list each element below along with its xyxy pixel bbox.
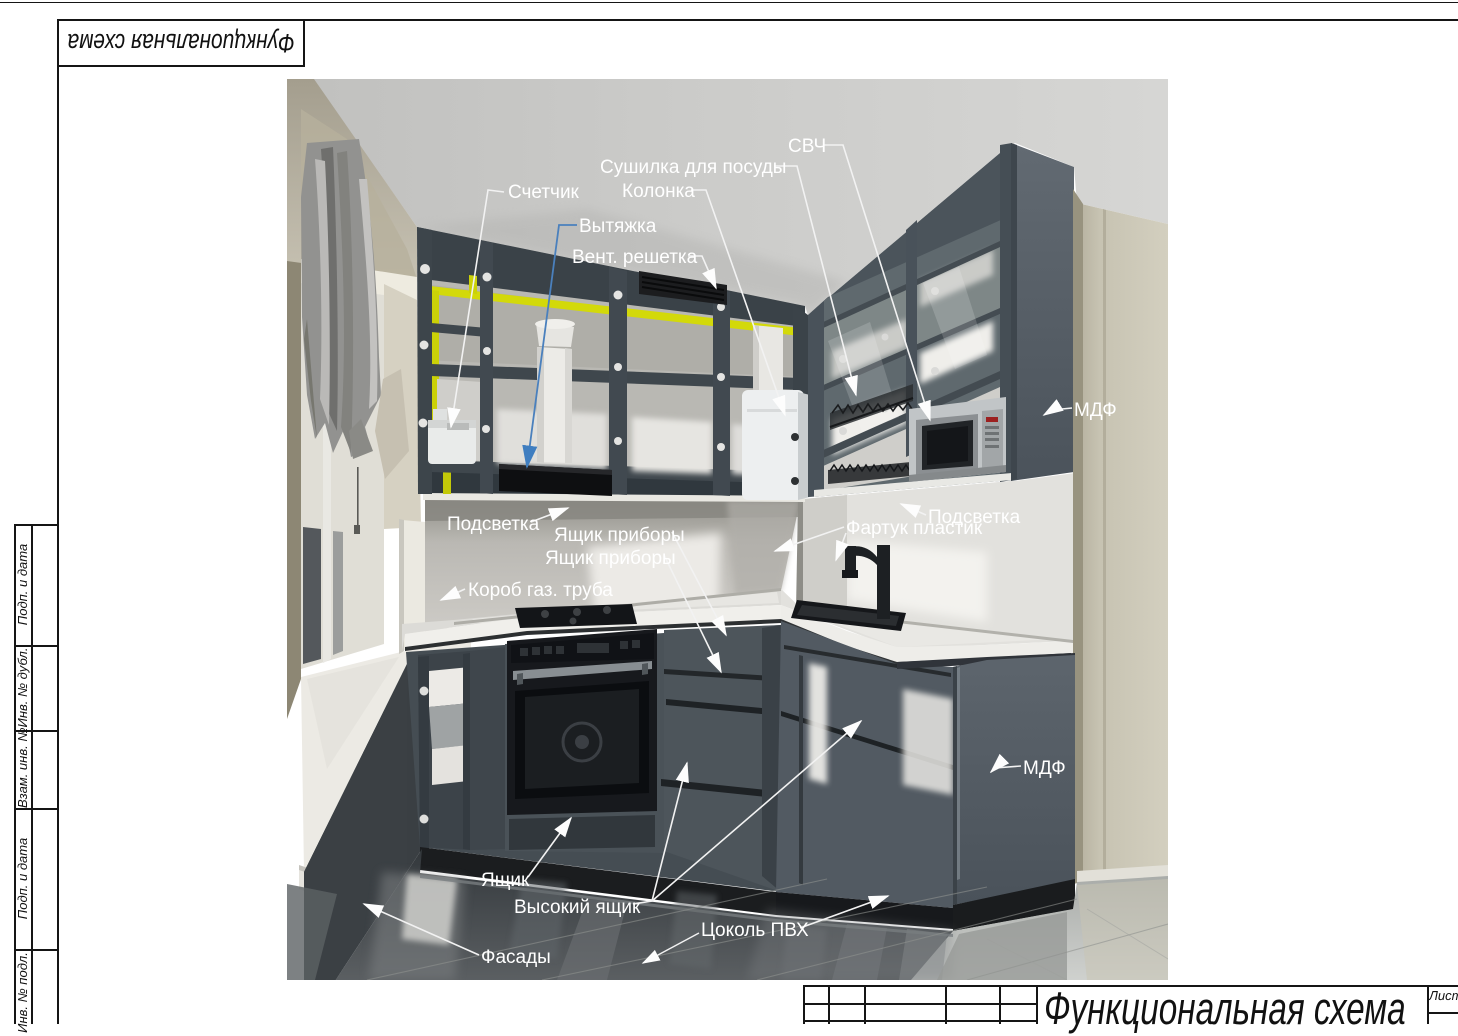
- svg-text:Счетчик: Счетчик: [508, 182, 580, 203]
- svg-text:Фасады: Фасады: [481, 947, 551, 968]
- svg-text:СВЧ: СВЧ: [788, 136, 826, 157]
- svg-text:Ящик приборы: Ящик приборы: [554, 525, 685, 546]
- svg-text:МДФ: МДФ: [1023, 758, 1066, 779]
- svg-text:Цоколь ПВХ: Цоколь ПВХ: [701, 920, 809, 941]
- svg-text:Ящик приборы: Ящик приборы: [545, 548, 676, 569]
- svg-text:Ящик: Ящик: [481, 870, 530, 891]
- svg-text:Вент. решетка: Вент. решетка: [572, 247, 698, 268]
- svg-text:МДФ: МДФ: [1074, 400, 1117, 421]
- svg-text:Высокий ящик: Высокий ящик: [514, 897, 641, 918]
- svg-text:Сушилка для посуды: Сушилка для посуды: [600, 157, 786, 178]
- svg-text:Колонка: Колонка: [622, 181, 695, 202]
- svg-text:Фартук пластик: Фартук пластик: [846, 518, 983, 539]
- svg-text:Вытяжка: Вытяжка: [579, 216, 657, 237]
- svg-text:Короб газ. труба: Короб газ. труба: [468, 580, 613, 601]
- svg-text:Подсветка: Подсветка: [447, 514, 540, 535]
